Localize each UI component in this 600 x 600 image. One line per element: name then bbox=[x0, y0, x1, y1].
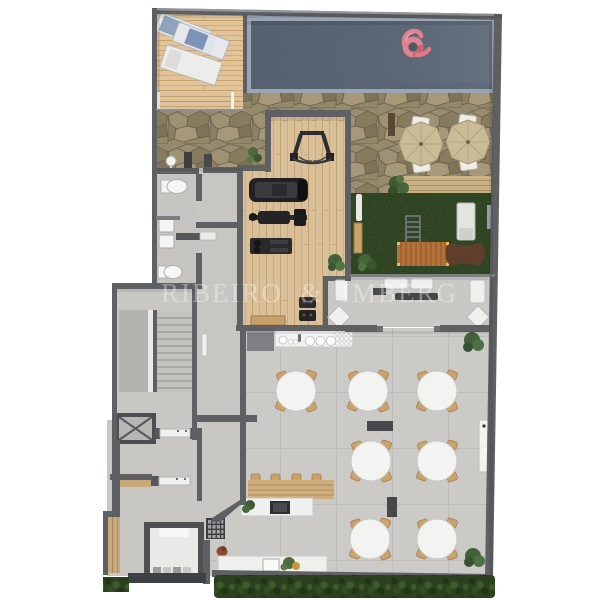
svg-text:RIBEIRO & IMBERG: RIBEIRO & IMBERG bbox=[161, 278, 458, 308]
